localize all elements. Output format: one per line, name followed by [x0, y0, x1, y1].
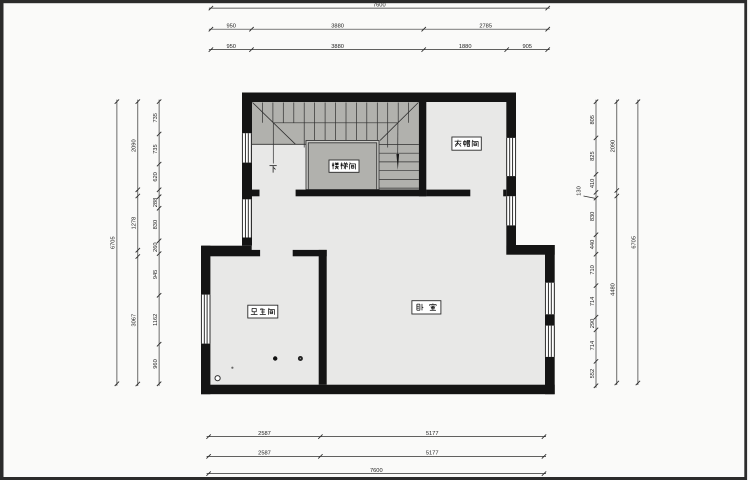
svg-text:950: 950: [226, 44, 236, 50]
svg-text:2587: 2587: [258, 431, 271, 437]
svg-text:735: 735: [153, 144, 159, 154]
svg-text:735: 735: [153, 113, 159, 123]
svg-text:2090: 2090: [611, 140, 617, 153]
svg-text:290: 290: [590, 319, 596, 329]
svg-text:830: 830: [153, 220, 159, 230]
svg-text:714: 714: [590, 341, 596, 351]
svg-text:3880: 3880: [331, 23, 344, 29]
svg-text:260: 260: [153, 242, 159, 252]
svg-text:6705: 6705: [632, 236, 638, 249]
svg-text:1880: 1880: [459, 44, 472, 50]
svg-text:130: 130: [577, 186, 583, 196]
svg-text:1278: 1278: [132, 217, 138, 230]
svg-text:1162: 1162: [153, 314, 159, 326]
svg-text:905: 905: [522, 44, 532, 50]
svg-text:945: 945: [153, 270, 159, 280]
svg-text:3067: 3067: [132, 314, 138, 327]
svg-text:805: 805: [590, 115, 596, 125]
svg-text:2587: 2587: [258, 451, 271, 457]
svg-text:830: 830: [590, 212, 596, 222]
svg-text:714: 714: [590, 297, 596, 307]
svg-text:7600: 7600: [370, 468, 383, 474]
svg-text:960: 960: [153, 359, 159, 369]
svg-text:3880: 3880: [331, 44, 344, 50]
svg-text:710: 710: [590, 265, 596, 275]
svg-text:4480: 4480: [611, 283, 617, 296]
svg-text:6705: 6705: [111, 236, 117, 249]
svg-text:440: 440: [590, 240, 596, 250]
svg-text:950: 950: [226, 23, 236, 29]
svg-text:825: 825: [590, 151, 596, 161]
svg-text:288: 288: [153, 198, 159, 208]
svg-text:620: 620: [153, 172, 159, 182]
svg-text:5177: 5177: [426, 451, 439, 457]
svg-text:5177: 5177: [426, 431, 439, 437]
svg-text:2785: 2785: [479, 23, 492, 29]
svg-text:2090: 2090: [132, 139, 138, 152]
svg-text:7600: 7600: [373, 2, 386, 8]
svg-text:552: 552: [590, 369, 596, 379]
svg-text:410: 410: [590, 179, 596, 189]
